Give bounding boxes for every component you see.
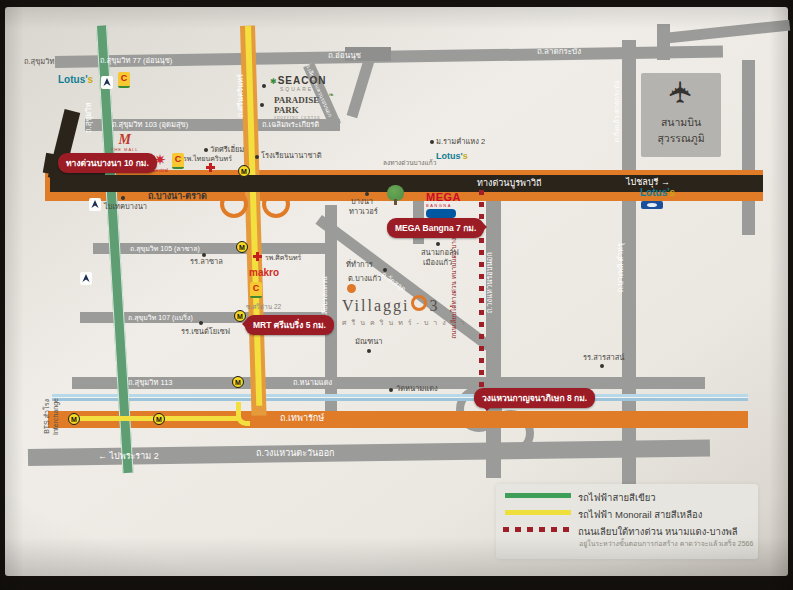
lotus-text-s: s <box>670 187 676 198</box>
ikea-logo: IKEA <box>426 209 456 218</box>
road-label: ลงทางด่วนบางแก้ว <box>383 160 436 167</box>
golf-label: สนามกอล์ฟ <box>421 248 459 258</box>
airport-line2: สุวรรณภูมิ <box>641 131 721 147</box>
legend-box: รถไฟฟ้าสายสีเขียว รถไฟฟ้า Monorail สายสี… <box>496 484 758 559</box>
legend-yellow-line <box>505 510 571 515</box>
the-mall-m: M <box>111 133 139 147</box>
poi-dot <box>436 242 440 246</box>
paradise-sub: SHOPPING CENTER <box>274 116 336 120</box>
road-label: ถ.สุขุมวิท 113 <box>128 379 172 387</box>
monorail-station: M <box>153 413 165 425</box>
badge-text: ทางด่วนบางนา 10 กม. <box>66 158 149 168</box>
poi-dot <box>367 349 371 353</box>
golf-label: เมืองแก้ว <box>423 258 452 268</box>
road-label: ถ.สุขุมวิท 103 (อุดมสุข) <box>112 121 188 129</box>
poi-dot <box>202 253 206 257</box>
bts-logo-icon <box>91 200 99 209</box>
poi-dot <box>389 388 393 392</box>
bangna-loop-left <box>220 190 248 218</box>
road-label: ถ.สุขุมวิท 77 (อ่อนนุช) <box>100 57 172 65</box>
bangna-tower-label: บางนา <box>351 197 373 207</box>
bigc-letter: C <box>121 73 128 83</box>
paradise-leaf-icon: ❧ <box>328 91 334 99</box>
road-label: ถ.สุขุมวิท <box>24 58 54 66</box>
school-label: รร.สารสาสน์ <box>583 353 624 363</box>
poi-dot <box>255 155 259 159</box>
villaggio-dot <box>347 284 356 293</box>
store-logo-blue <box>641 201 663 209</box>
road-label: ทางด่วนบูรพาวิถี <box>477 179 541 188</box>
airport-box: ✈ สนามบิน สุวรรณภูมิ <box>641 73 721 157</box>
temple-label: วัดศรีเอี่ยม <box>210 145 244 155</box>
lotus-text: Lotus' <box>640 187 670 198</box>
station-letter: M <box>241 168 247 175</box>
village-label: มัณฑนา <box>355 337 382 347</box>
school-label: โรงเรียนนานาชาติ <box>261 151 322 161</box>
legend-red-dashed-line <box>503 527 573 532</box>
bigc-letter: C <box>175 154 182 164</box>
hospital-label: รพ.ไทยนครินทร์ <box>183 154 232 163</box>
poi-dot <box>262 84 266 88</box>
the-mall-text: THE MALL <box>111 147 139 152</box>
villaggio-number: 3 <box>429 297 439 314</box>
seacon-text: SEACON <box>278 75 327 86</box>
road-label: ถ.สุขุมวิท <box>85 103 93 133</box>
poi-dot <box>121 196 125 200</box>
villaggio-ring <box>411 295 427 311</box>
lotus-logo: Lotus's <box>58 74 93 85</box>
poi-dot <box>383 268 387 272</box>
badge-text: MRT ศรีแบริ่ง 5 กม. <box>253 320 326 330</box>
villaggio-name: Villaggi <box>342 297 409 314</box>
villaggio-logo: Villaggi3 ศรีนครินทร์-บางนา <box>342 284 469 328</box>
badge-pointer <box>237 319 247 329</box>
lotus-logo: Lotus's <box>436 151 468 161</box>
temple-label: วัดหนามแดง <box>396 384 438 394</box>
road-label: ถ.ศรีนครินทร์ <box>237 74 245 118</box>
mega-text: MEGA <box>426 192 461 203</box>
lotus-text-s: s <box>88 74 94 85</box>
map-photo: M M M M M M ถ.สุขุมวิท ถ.สุขุมวิท 77 (อ่… <box>0 0 793 590</box>
hospital-label: รพ.ศิครินทร์ <box>265 253 301 262</box>
bts-station-icon <box>80 272 92 285</box>
airport-line1: สนามบิน <box>641 115 721 131</box>
station-letter: M <box>235 379 241 386</box>
legend-note: อยู่ในระหว่างขั้นตอนการก่อสร้าง คาดว่าจะ… <box>579 538 753 549</box>
seacon-sub: SQUARE <box>280 86 327 92</box>
road-label: ถ.หนามแดง <box>293 379 332 387</box>
paradise-text: PARADISE PARK <box>274 96 336 116</box>
poi-dot <box>260 103 264 107</box>
lotus-text: Lotus' <box>436 151 463 161</box>
bigc-letter: C <box>253 283 260 293</box>
paradise-park-logo: ❧ PARADISE PARK SHOPPING CENTER <box>274 96 336 120</box>
road-label: ถ.สุขุมวิท 105 (ลาซาล) <box>130 245 200 252</box>
station-letter: M <box>71 416 77 423</box>
mega-bangna-logo: MEGA BANGNA IKEA <box>426 192 461 218</box>
road-label: ถ.ลาดกระบัง <box>537 48 581 56</box>
monorail-station: M <box>238 165 250 177</box>
villaggio-subtitle: ศรีนครินทร์-บางนา <box>342 317 469 328</box>
road-label: ถ.บางนา-ตราด <box>148 192 207 201</box>
poi-dot <box>365 192 369 196</box>
badge-wongwaen-kanchana: วงแหวนกาญจนาภิเษก 8 กม. <box>474 388 595 408</box>
school-label: รร.เซนต์โยเซฟ <box>181 327 230 337</box>
airport-name: สนามบิน สุวรรณภูมิ <box>641 115 721 147</box>
road-label: ถ.วงแหวนรอบนอก <box>486 252 494 313</box>
road-label: BTS สำโรง <box>43 399 50 434</box>
badge-text: MEGA Bangna 7 กม. <box>395 223 476 233</box>
road-label: ถ.กิ่งแก้ว-ลาดกระบัง <box>613 81 620 142</box>
badge-expressway-bangna: ทางด่วนบางนา 10 กม. <box>58 153 157 173</box>
badge-pointer <box>482 222 492 232</box>
station-letter: M <box>156 416 162 423</box>
bigc-logo: C <box>118 72 130 88</box>
legend-green-label: รถไฟฟ้าสายสีเขียว <box>578 490 656 505</box>
poi-dot <box>430 140 434 144</box>
the-mall-logo: M THE MALL <box>111 133 139 152</box>
school-label: รร.ลาซาล <box>190 257 223 267</box>
monorail-curve <box>236 402 250 426</box>
makro-logo: makro <box>249 267 279 278</box>
hospital-cross-icon <box>206 163 215 172</box>
bitec-label: ไบเทคบางนา <box>104 202 147 212</box>
monorail-station: M <box>232 376 244 388</box>
bangna-loop-right <box>262 190 290 218</box>
bts-station-icon <box>101 76 113 89</box>
road-label: ไปชลบุรี → <box>626 178 670 187</box>
lotus-logo: Lotus's <box>640 187 675 198</box>
seacon-mark-icon: ✱ <box>270 77 278 86</box>
monorail-station: M <box>68 413 80 425</box>
district-office-label: ต.บางแก้ว <box>348 274 381 284</box>
road-label: ถ.เฉลิมพระเกียรติ <box>262 121 319 129</box>
tree-logo <box>387 185 404 205</box>
road-label: ซ.ศรีด่าน 22 <box>246 304 281 311</box>
road-label: ถ.สุขุมวิท 107 (แบริ่ง) <box>128 314 193 321</box>
poi-dot <box>600 364 604 368</box>
bts-logo-icon <box>103 78 111 87</box>
legend-green-line <box>505 493 571 498</box>
bts-logo-icon <box>82 274 90 283</box>
mega-sub: BANGNA <box>426 203 461 208</box>
badge-mega-bangna: MEGA Bangna 7 กม. <box>387 218 484 238</box>
district-office-label: ที่ทำการ <box>346 260 373 270</box>
badge-text: วงแหวนกาญจนาภิเษก 8 กม. <box>482 393 587 403</box>
badge-mrt-sribearing: MRT ศรีแบริ่ง 5 กม. <box>245 315 334 335</box>
bigc-logo: C <box>250 282 262 298</box>
legend-red-label: ถนนเลียบใต้ทางด่วน หนามแดง-บางพลี <box>578 524 738 539</box>
badge-pointer <box>482 406 492 416</box>
university-label: ม.รามคำแหง 2 <box>436 137 485 147</box>
road-label: ถ.วงแหวนตะวันออก <box>256 449 334 458</box>
lotus-text-s: s <box>463 151 468 161</box>
canal-samrong <box>52 394 748 401</box>
monorail-station: M <box>236 241 248 253</box>
seacon-logo: ✱SEACON SQUARE <box>270 76 327 92</box>
road-label: ← ไปพระราม 2 <box>98 452 159 461</box>
poi-dot <box>204 148 208 152</box>
road-label: Interchange <box>52 398 59 435</box>
road-label: ถ.อ่อนนุช <box>328 52 361 60</box>
poi-dot <box>199 321 203 325</box>
bts-station-icon <box>89 198 101 211</box>
road-label: ถ.เทพารักษ์ <box>280 414 324 423</box>
road-far-right <box>742 60 755 235</box>
bigc-logo: C <box>172 153 184 169</box>
legend-yellow-label: รถไฟฟ้า Monorail สายสีเหลือง <box>578 507 702 522</box>
hospital-cross-icon <box>253 252 262 261</box>
road-label: ถ.บางพลี-ตำหรุ <box>617 243 625 292</box>
station-letter: M <box>239 244 245 251</box>
lotus-text: Lotus' <box>58 74 88 85</box>
bangna-tower-label: ทาวเวอร์ <box>349 207 378 217</box>
